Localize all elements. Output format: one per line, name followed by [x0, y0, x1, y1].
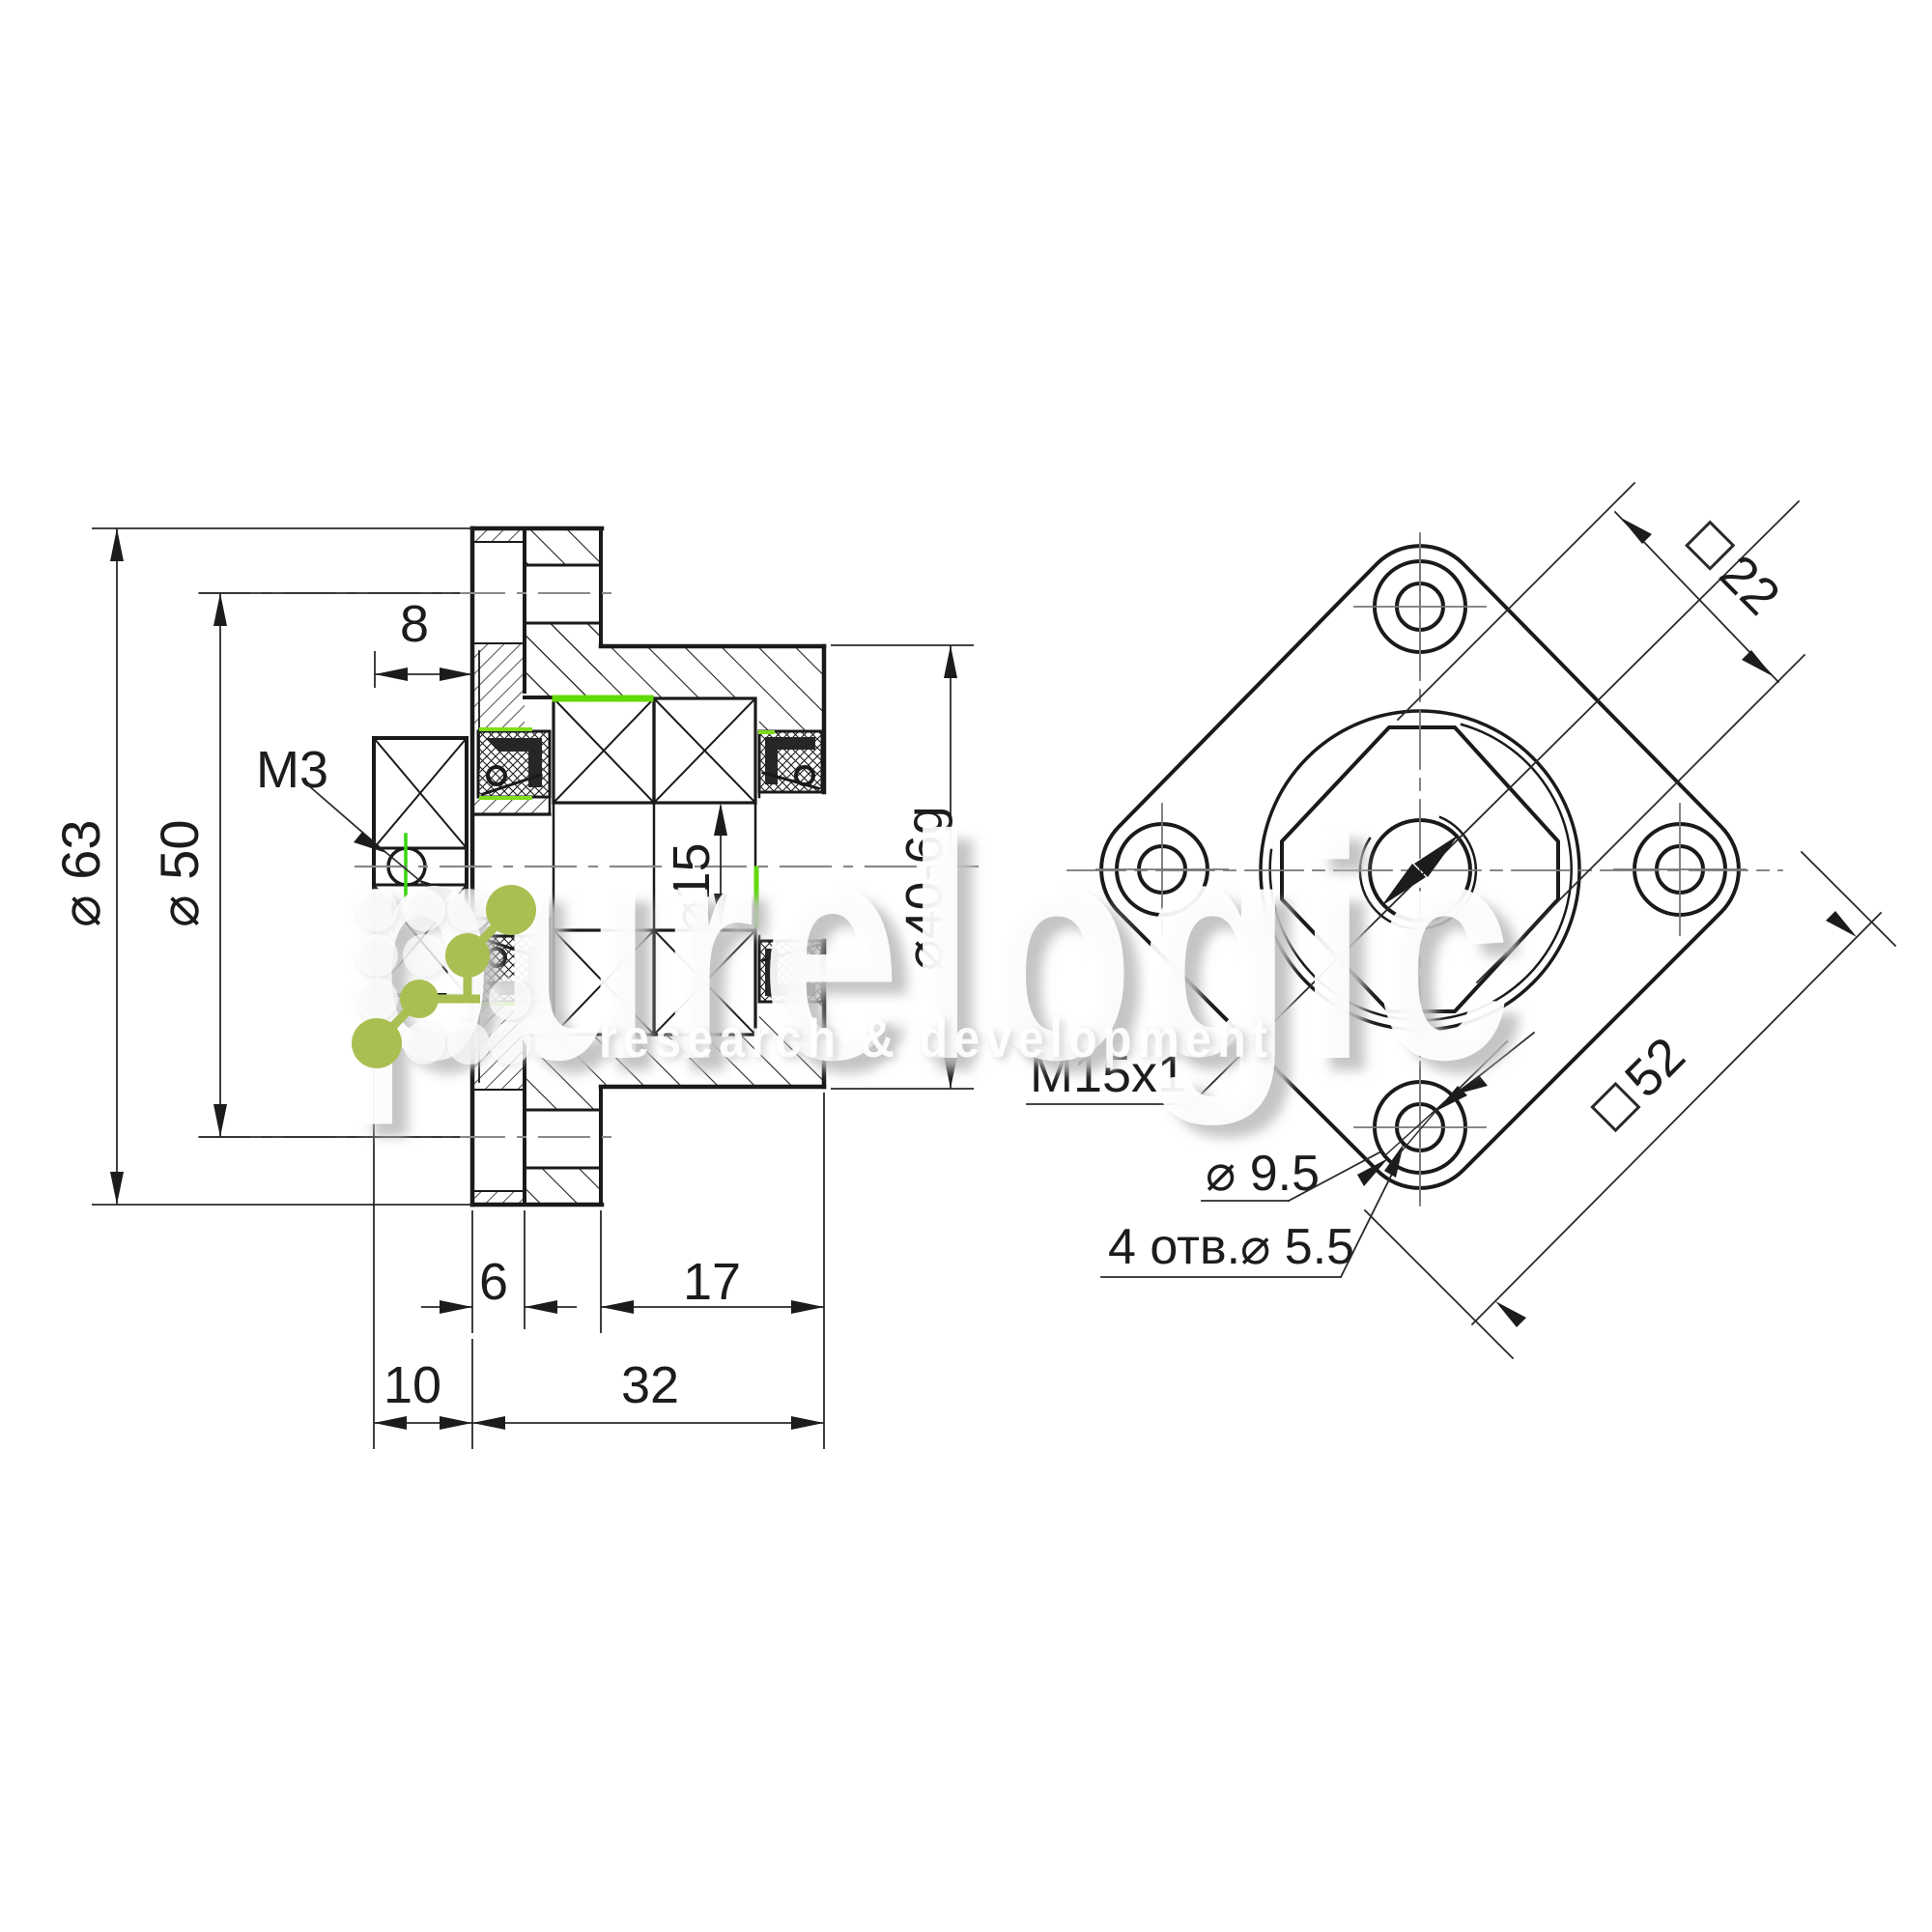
svg-text:research & development: research & development — [599, 1008, 1273, 1068]
svg-text:⌀ 50: ⌀ 50 — [149, 819, 210, 927]
svg-text:8: 8 — [400, 595, 429, 653]
svg-text:4 отв.⌀ 5.5: 4 отв.⌀ 5.5 — [1108, 1219, 1354, 1275]
svg-text:6: 6 — [479, 1253, 508, 1311]
svg-text:purelogic: purelogic — [340, 769, 1517, 1127]
svg-text:10: 10 — [384, 1356, 441, 1414]
svg-text:32: 32 — [621, 1356, 679, 1414]
svg-text:M3: M3 — [256, 741, 328, 799]
svg-text:17: 17 — [683, 1253, 741, 1311]
svg-text:⌀ 63: ⌀ 63 — [50, 819, 111, 927]
